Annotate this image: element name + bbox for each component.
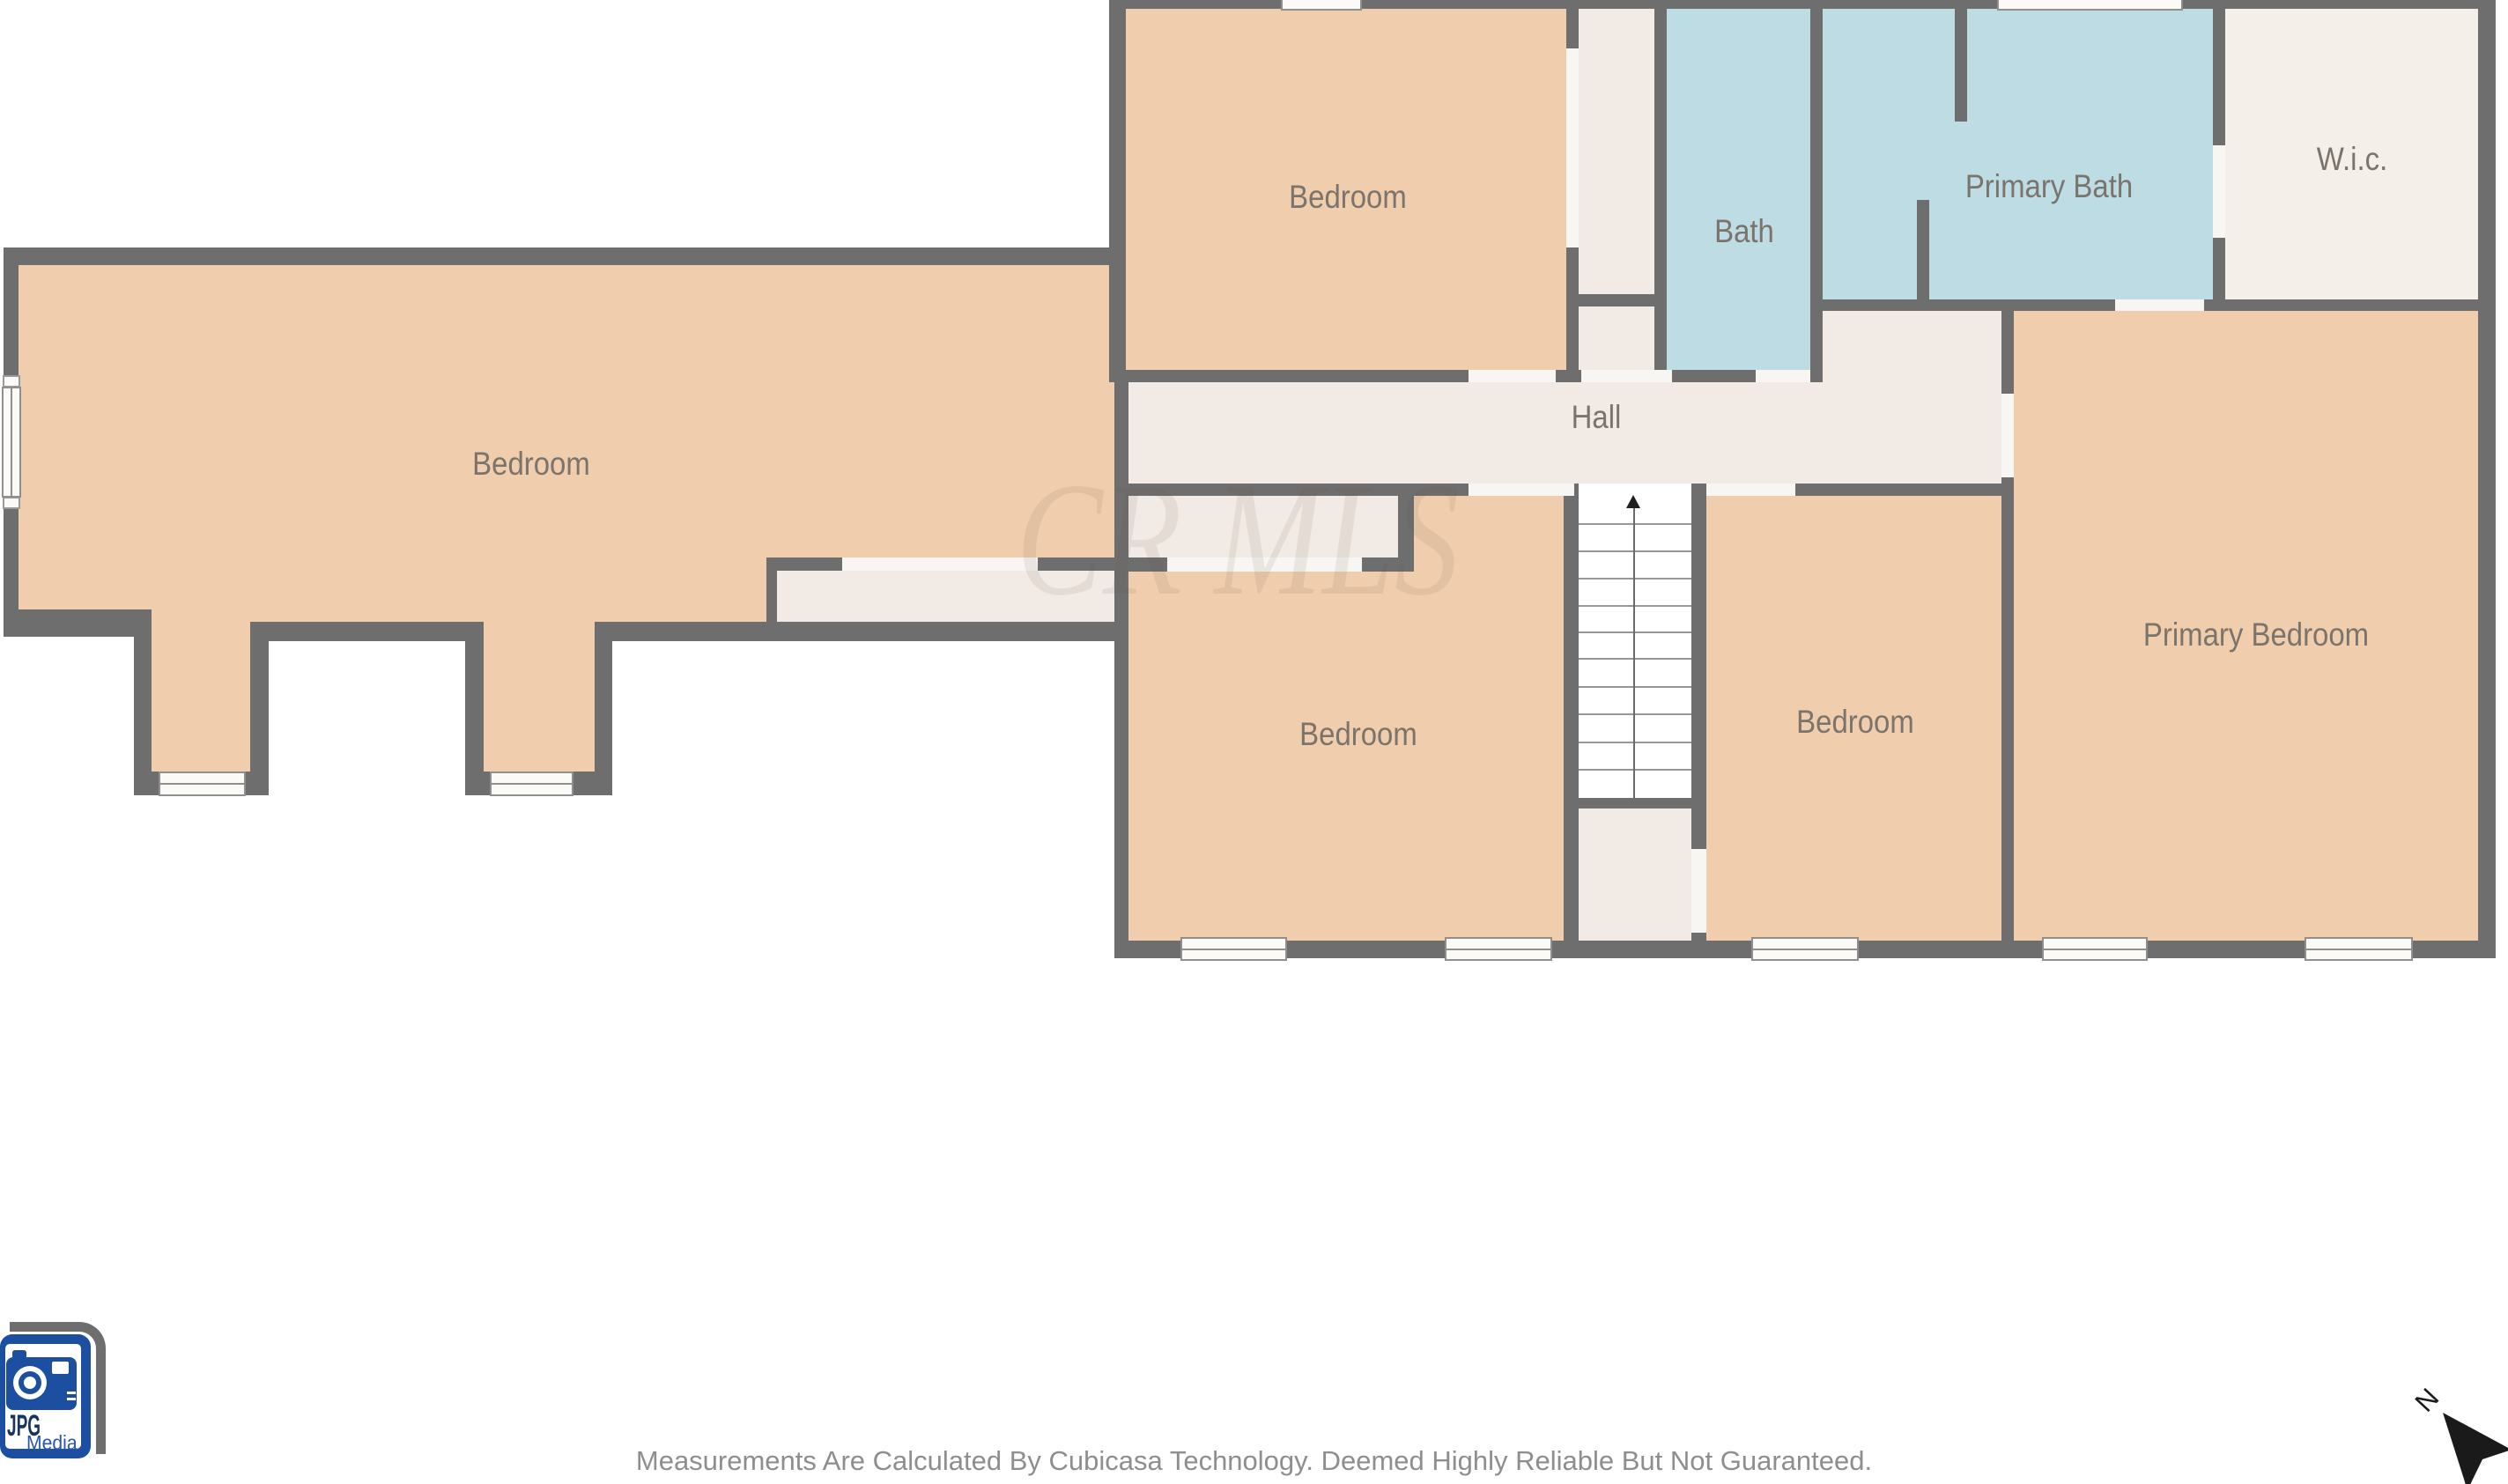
svg-text:N: N xyxy=(2409,1383,2445,1418)
